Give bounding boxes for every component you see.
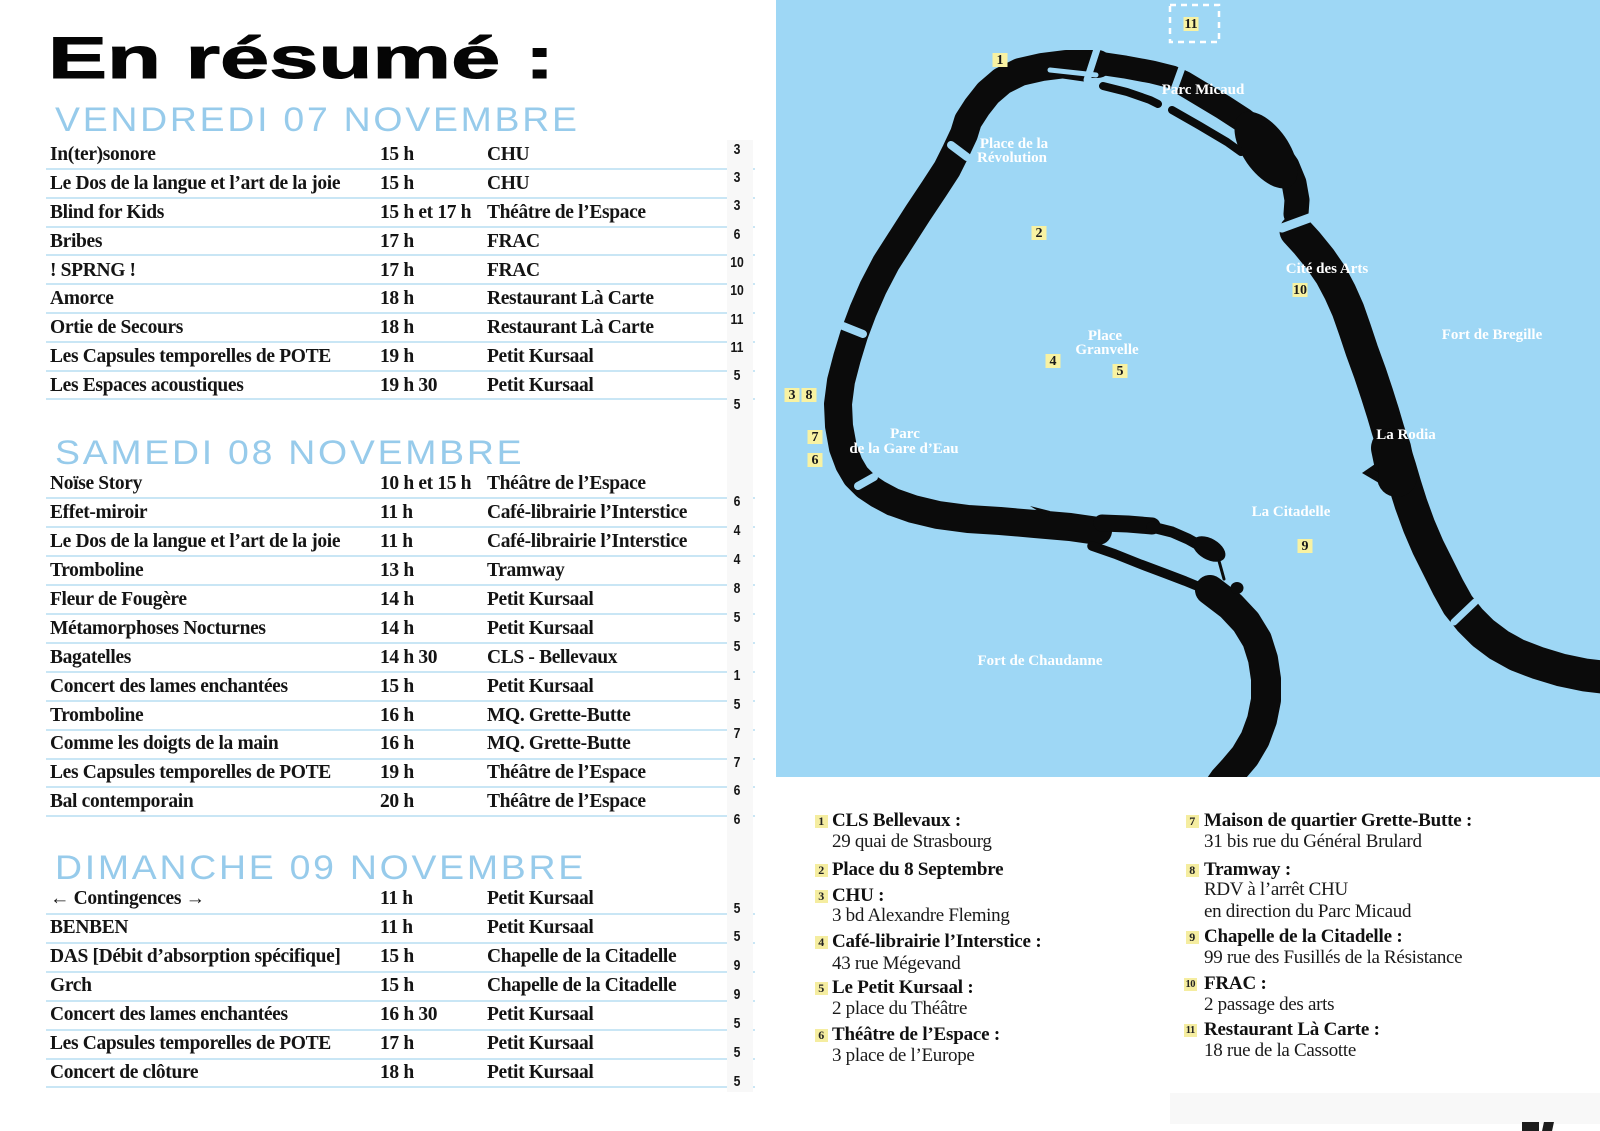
svg-text:La Rodia: La Rodia (1376, 427, 1436, 443)
svg-text:Parc: Parc (890, 426, 920, 442)
svg-text:Fort de Chaudanne: Fort de Chaudanne (977, 653, 1102, 669)
svg-text:Parc Micaud: Parc Micaud (1162, 82, 1245, 98)
svg-text:8: 8 (806, 388, 813, 403)
svg-text:Fort de Bregille: Fort de Bregille (1442, 327, 1543, 343)
svg-text:Granvelle: Granvelle (1075, 342, 1139, 358)
svg-text:2: 2 (1036, 226, 1043, 241)
svg-text:3: 3 (789, 388, 796, 403)
svg-text:La Citadelle: La Citadelle (1252, 504, 1331, 520)
svg-text:1: 1 (997, 53, 1004, 68)
svg-text:5: 5 (1117, 364, 1124, 379)
svg-text:Révolution: Révolution (977, 150, 1048, 166)
svg-text:7: 7 (812, 430, 819, 445)
svg-text:9: 9 (1302, 539, 1309, 554)
svg-text:10: 10 (1293, 283, 1307, 298)
svg-text:Cité des Arts: Cité des Arts (1286, 261, 1369, 277)
svg-text:de la Gare d’Eau: de la Gare d’Eau (849, 441, 958, 457)
svg-text:6: 6 (812, 453, 819, 468)
svg-text:11: 11 (1184, 17, 1197, 32)
svg-text:4: 4 (1050, 354, 1057, 369)
